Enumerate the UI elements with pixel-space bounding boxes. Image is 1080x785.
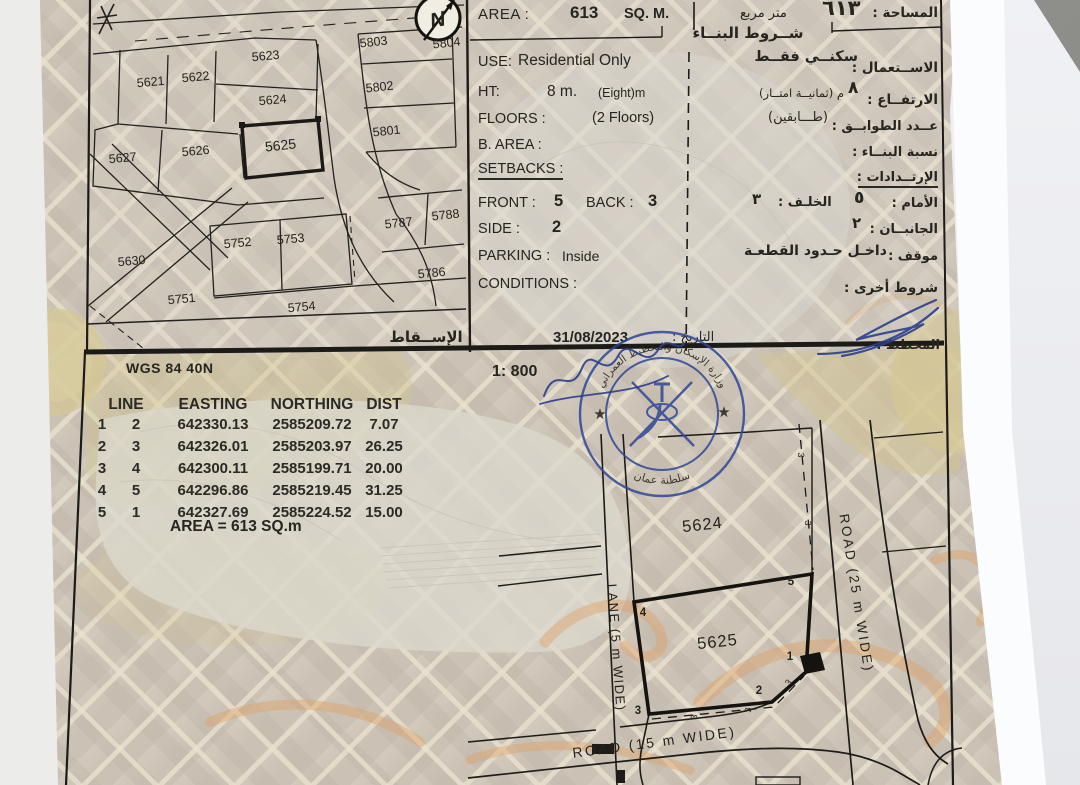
date-value: 31/08/2023 (553, 329, 628, 346)
table-header-easting: EASTING (165, 396, 261, 414)
table-cell: 2585203.97 (262, 438, 362, 455)
planner-label-ar: المخطط : (886, 338, 940, 353)
use-label-ar: الاســتعمال : (858, 60, 938, 76)
area-unit-ar: متر مربع (740, 6, 787, 21)
datum-label: WGS 84 40N (126, 360, 213, 376)
table-cell: 2585219.45 (262, 482, 362, 499)
parking-label-ar: موقف : (862, 249, 938, 264)
table-cell: 20.00 (358, 460, 410, 477)
b-area-label-ar: نسبة البنــاء : (856, 145, 938, 160)
side-value: 2 (552, 218, 561, 237)
height-label: HT: (478, 84, 500, 100)
area-label-ar: المساحة : (858, 5, 938, 21)
table-cell: 2 (126, 416, 146, 433)
table-cell: 642296.86 (165, 482, 261, 499)
table-header-line: LINE (98, 396, 154, 414)
side-label: SIDE : (478, 221, 520, 237)
building-conditions-header: شــروط البنــاء (666, 24, 830, 42)
scale-label: 1: 800 (492, 363, 537, 381)
floors-value-ar: (طـــابقين) (768, 110, 828, 125)
date-label-ar: التاريخ : (672, 330, 714, 345)
height-note: (Eight)m (598, 86, 645, 100)
use-value: Residential Only (518, 52, 631, 70)
area-unit: SQ. M. (624, 6, 669, 22)
height-note-ar: م (ثمانيــة امتــار) (722, 86, 844, 100)
use-label: USE: (478, 54, 512, 70)
b-area-label: B. AREA : (478, 137, 542, 153)
back-label-ar: الخلـف : (778, 195, 832, 210)
table-cell: 2585209.72 (262, 416, 362, 433)
table-cell: 4 (92, 482, 112, 499)
use-value-ar: سكنــي فقــط (740, 49, 858, 65)
table-cell: 642330.13 (165, 416, 261, 433)
setbacks-label: SETBACKS : (478, 161, 563, 180)
back-value-ar: ٣ (752, 190, 761, 208)
conditions-label: CONDITIONS : (478, 276, 577, 292)
side-label-ar: الجانبــان : (858, 222, 938, 237)
floors-label-ar: عــدد الطوابــق : (848, 119, 938, 134)
height-value-ar: ٨ (848, 78, 858, 98)
parking-label: PARKING : (478, 248, 550, 264)
area-value: 613 (570, 3, 598, 23)
table-cell: 3 (92, 460, 112, 477)
back-value: 3 (648, 192, 657, 211)
front-value: 5 (554, 192, 563, 211)
document-text-layer: AREA : 613 SQ. M. متر مربع ٦١٣ المساحة :… (0, 0, 1080, 785)
height-value: 8 m. (547, 83, 577, 101)
table-cell: 15.00 (358, 504, 410, 521)
front-label: FRONT : (478, 195, 536, 211)
projection-label-ar: الإســقاط (388, 328, 464, 346)
table-cell: 5 (92, 504, 112, 521)
table-cell: 642326.01 (165, 438, 261, 455)
table-cell: 2585199.71 (262, 460, 362, 477)
table-cell: 1 (126, 504, 146, 521)
back-label: BACK : (586, 195, 634, 211)
front-label-ar: الأمام : (862, 196, 938, 211)
height-label-ar: الارتفــاع : (858, 92, 938, 108)
photographed-plot-document: N 5621 5622 5623 5624 5625 5626 5627 563… (0, 0, 1080, 785)
table-cell: 7.07 (358, 416, 410, 433)
table-area-line: AREA = 613 SQ.m (170, 518, 302, 536)
table-cell: 26.25 (358, 438, 410, 455)
table-cell: 2 (92, 438, 112, 455)
table-header-dist: DIST (358, 396, 410, 414)
parking-value: Inside (562, 248, 599, 264)
setbacks-label-ar: الإرتــدادات : (858, 170, 938, 188)
area-value-ar: ٦١٣ (822, 0, 860, 20)
table-header-northing: NORTHING (262, 396, 362, 414)
conditions-label-ar: شروط أخرى : (850, 280, 938, 296)
table-cell: 31.25 (358, 482, 410, 499)
table-cell: 3 (126, 438, 146, 455)
table-cell: 1 (92, 416, 112, 433)
table-cell: 4 (126, 460, 146, 477)
floors-value: (2 Floors) (592, 110, 654, 126)
table-cell: 642300.11 (165, 460, 261, 477)
table-cell: 5 (126, 482, 146, 499)
area-label: AREA : (478, 6, 529, 23)
floors-label: FLOORS : (478, 111, 546, 127)
